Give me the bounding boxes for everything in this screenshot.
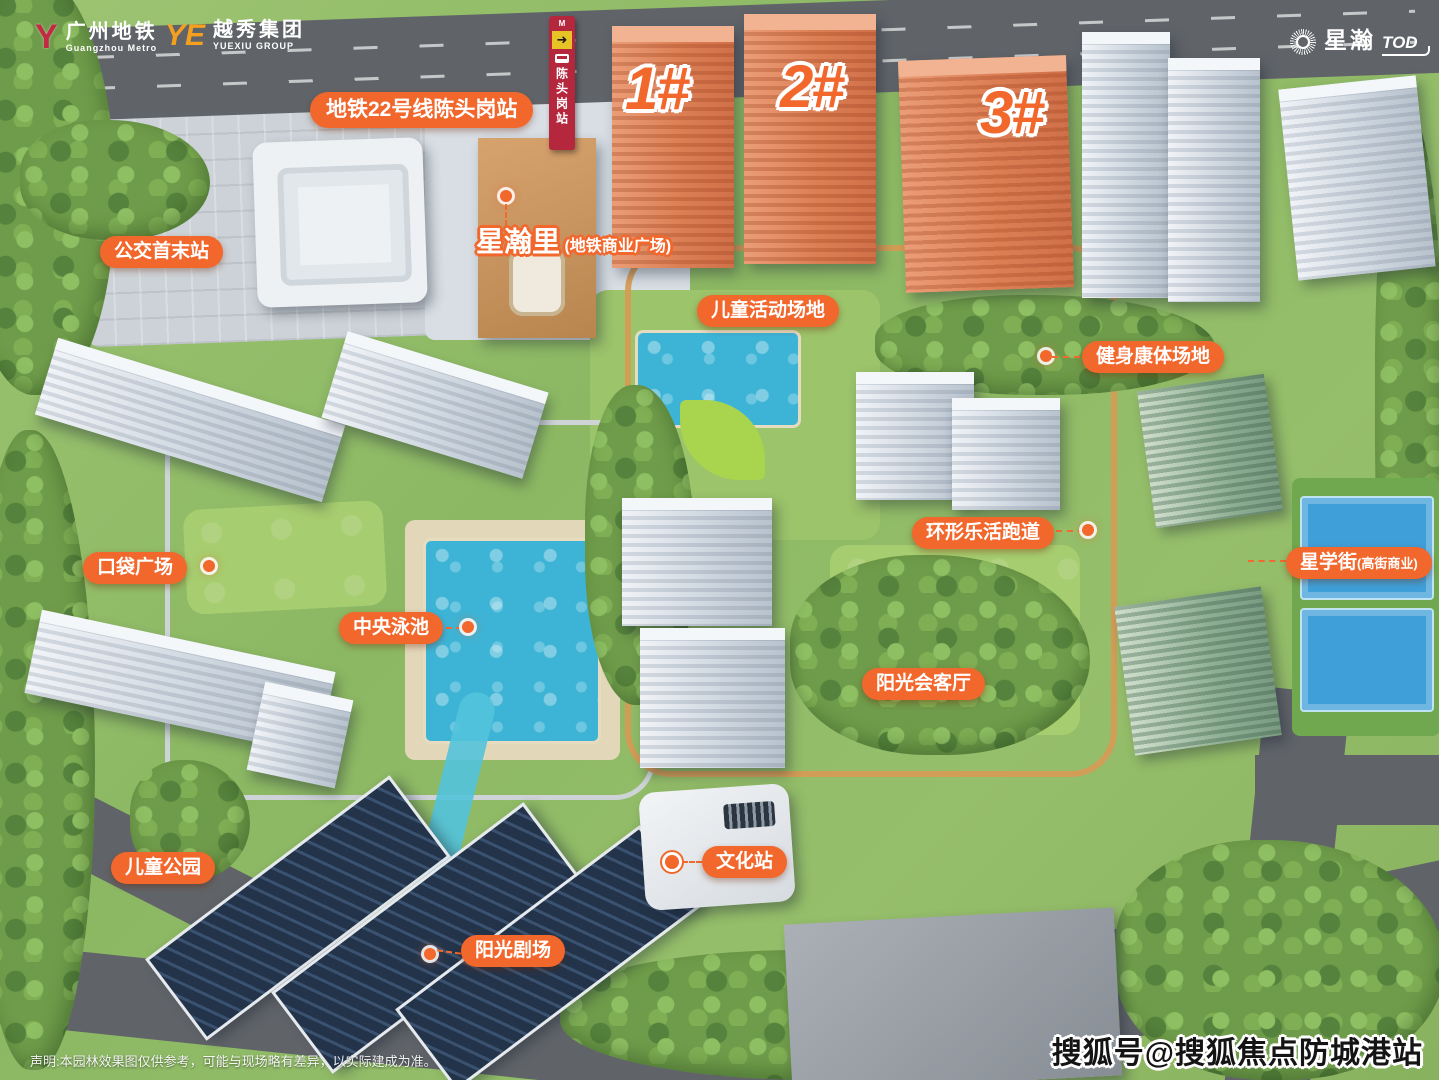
label-metro-line-station: 地铁22号线陈头岗站 bbox=[310, 92, 533, 128]
residential-cross-tower bbox=[640, 628, 785, 768]
yuexiu-logo-cn: 越秀集团 bbox=[213, 20, 305, 41]
label-bus-terminus: 公交首末站 bbox=[100, 236, 223, 268]
callout-line bbox=[682, 861, 702, 863]
callout-line bbox=[1056, 530, 1084, 532]
label-sunshine-lounge: 阳光会客厅 bbox=[862, 668, 985, 700]
xinghan-tod-logo: 星瀚 TOD bbox=[1290, 28, 1418, 56]
green-glass-tower bbox=[1114, 586, 1281, 755]
residential-cross-tower bbox=[247, 682, 354, 789]
metro-y-icon: Y bbox=[35, 20, 58, 54]
guangzhou-metro-logo: Y 广州地铁 Guangzhou Metro bbox=[35, 20, 158, 54]
white-tower bbox=[1278, 75, 1435, 280]
sohu-watermark: 搜狐号@搜狐焦点防城港站 bbox=[1052, 1028, 1423, 1072]
station-sign-name: 陈头岗站 bbox=[554, 67, 571, 127]
residential-cross-tower bbox=[952, 398, 1060, 510]
tower-3-number: 3# bbox=[980, 78, 1043, 147]
yuexiu-group-logo: YE 越秀集团 YUEXIU GROUP bbox=[165, 20, 305, 51]
callout-dot-jogging-track bbox=[1082, 524, 1094, 536]
yuexiu-monogram-icon: YE bbox=[165, 21, 205, 51]
label-sunshine-theater: 阳光剧场 bbox=[461, 935, 565, 967]
callout-line bbox=[1248, 560, 1286, 562]
label-pocket-plaza: 口袋广场 bbox=[83, 552, 187, 584]
residential-cross-tower bbox=[622, 498, 772, 626]
metro-mini-logo: M bbox=[559, 20, 566, 28]
metro-station-sign: M ➜ 陈头岗站 bbox=[549, 16, 575, 150]
callout-dot-xinghanli bbox=[500, 190, 512, 202]
callout-dot-fitness bbox=[1040, 350, 1052, 362]
masterplan-aerial-render: M ➜ 陈头岗站 1# 2# 3# 地铁22号线陈头岗站 公交首末站 儿童活动场… bbox=[0, 0, 1439, 1080]
label-central-pool: 中央泳池 bbox=[339, 612, 443, 644]
central-swimming-pool bbox=[423, 538, 601, 744]
tower-1-number: 1# bbox=[625, 54, 688, 123]
basketball-court bbox=[1300, 608, 1434, 712]
sports-courts-area bbox=[1292, 478, 1439, 736]
label-star-street-main: 星学街 bbox=[1300, 552, 1357, 573]
metro-logo-cn: 广州地铁 bbox=[66, 22, 158, 43]
metro-logo-en: Guangzhou Metro bbox=[66, 43, 158, 53]
road-right-horizontal bbox=[1255, 755, 1439, 825]
tree-cluster bbox=[20, 120, 210, 240]
callout-dot-culture-station bbox=[662, 852, 682, 872]
label-jogging-track: 环形乐活跑道 bbox=[912, 517, 1054, 549]
yuexiu-logo-en: YUEXIU GROUP bbox=[213, 41, 305, 51]
label-children-activity: 儿童活动场地 bbox=[697, 295, 839, 327]
train-icon bbox=[555, 54, 569, 63]
bus-terminus-building bbox=[252, 137, 428, 308]
green-glass-tower bbox=[1137, 374, 1283, 528]
disclaimer-text: 声明:本园林效果图仅供参考，可能与现场略有差异，以实际建成为准。 bbox=[30, 1051, 437, 1070]
callout-dot-central-pool bbox=[462, 621, 474, 633]
white-tower bbox=[1168, 58, 1260, 302]
label-xinghanli: 星瀚里 (地铁商业广场) bbox=[476, 220, 671, 260]
label-xinghanli-sub: (地铁商业广场) bbox=[564, 238, 671, 255]
callout-dot-theater bbox=[424, 948, 436, 960]
tod-logo-en: TOD bbox=[1382, 33, 1418, 56]
arrow-icon: ➜ bbox=[552, 31, 572, 49]
label-star-street-sub: (高街商业) bbox=[1357, 556, 1418, 571]
tower-2-number: 2# bbox=[780, 52, 843, 121]
label-star-street: 星学街(高街商业) bbox=[1286, 547, 1432, 579]
white-tower bbox=[1082, 32, 1170, 298]
label-fitness-area: 健身康体场地 bbox=[1082, 341, 1224, 373]
callout-line bbox=[1052, 356, 1080, 358]
starburst-icon bbox=[1290, 29, 1316, 55]
label-children-park: 儿童公园 bbox=[111, 852, 215, 884]
label-xinghanli-main: 星瀚里 bbox=[476, 226, 560, 257]
tod-logo-cn: 星瀚 bbox=[1324, 28, 1376, 52]
label-culture-station: 文化站 bbox=[702, 846, 787, 878]
callout-dot-pocket-plaza bbox=[203, 560, 215, 572]
